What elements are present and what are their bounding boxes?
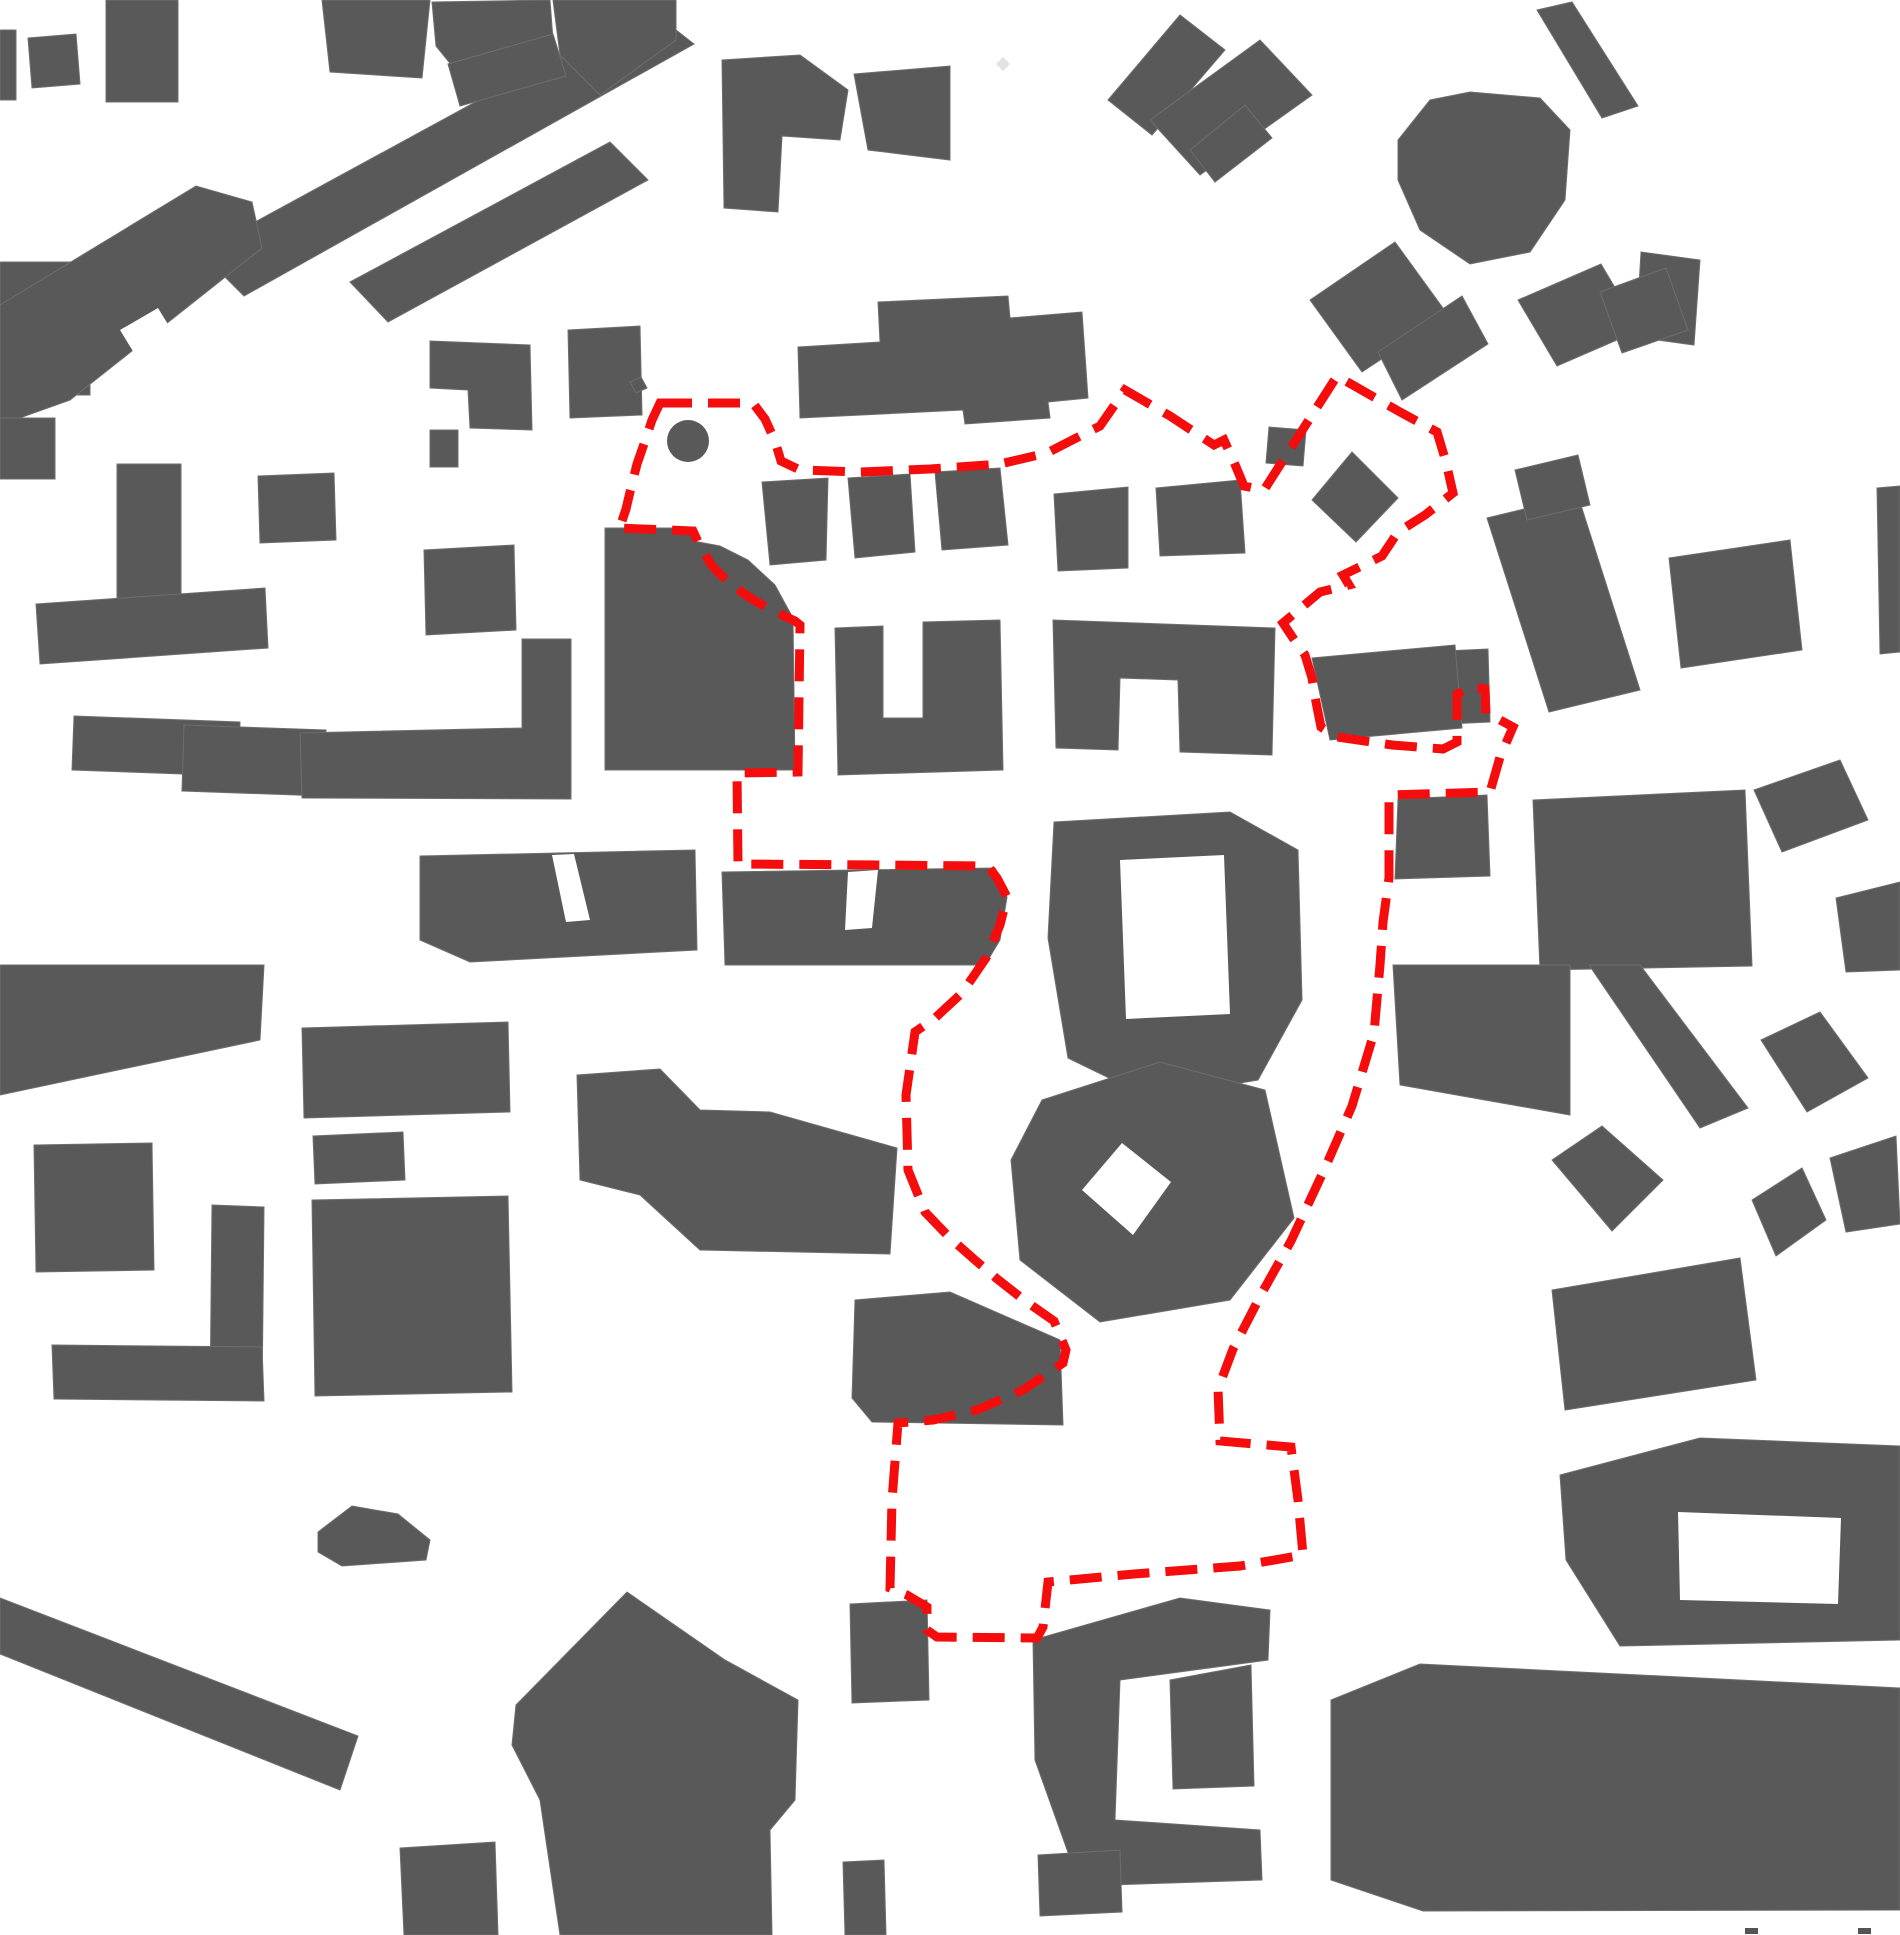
courtyard-void <box>1120 855 1230 1019</box>
building-footprint <box>302 1022 510 1118</box>
edge-tick-mark <box>1745 1928 1758 1934</box>
building-footprint <box>854 66 950 160</box>
building-footprint <box>1331 1664 1900 1911</box>
building-footprint <box>935 468 1008 550</box>
building-footprint <box>28 34 80 88</box>
courtyard-void <box>1678 1512 1841 1604</box>
building-footprint <box>1156 480 1245 556</box>
building-footprint <box>313 1132 405 1184</box>
building-footprint <box>430 430 458 467</box>
building-footprint <box>1669 540 1802 668</box>
building-footprint <box>848 474 915 558</box>
building-footprint <box>0 30 16 100</box>
building-footprint <box>52 1345 264 1401</box>
building-footprint <box>0 418 55 479</box>
building-footprint <box>106 0 178 102</box>
building-footprint <box>1395 795 1490 879</box>
building-footprint <box>400 1842 498 1935</box>
building-footprint <box>1533 790 1752 970</box>
map-canvas <box>0 0 1900 1935</box>
building-footprint <box>322 0 430 78</box>
building-footprint <box>850 1600 929 1703</box>
building-footprint <box>1877 486 1900 654</box>
building-footprint <box>1038 1850 1122 1916</box>
landmarks-layer <box>667 420 709 462</box>
building-footprint <box>1170 1665 1254 1789</box>
building-footprint <box>762 478 828 565</box>
building-footprint <box>1836 882 1900 972</box>
building-footprint <box>258 473 336 543</box>
building-footprint <box>312 1196 512 1396</box>
building-footprint <box>34 1143 154 1272</box>
edge-tick-mark <box>1858 1928 1871 1934</box>
round-tower-footprint <box>667 420 709 462</box>
site-plan-map <box>0 0 1900 1935</box>
building-footprint <box>568 326 642 418</box>
building-footprint <box>1054 487 1128 571</box>
building-footprint <box>1312 645 1462 740</box>
building-footprint <box>424 545 516 635</box>
building-footprint <box>843 1860 886 1935</box>
